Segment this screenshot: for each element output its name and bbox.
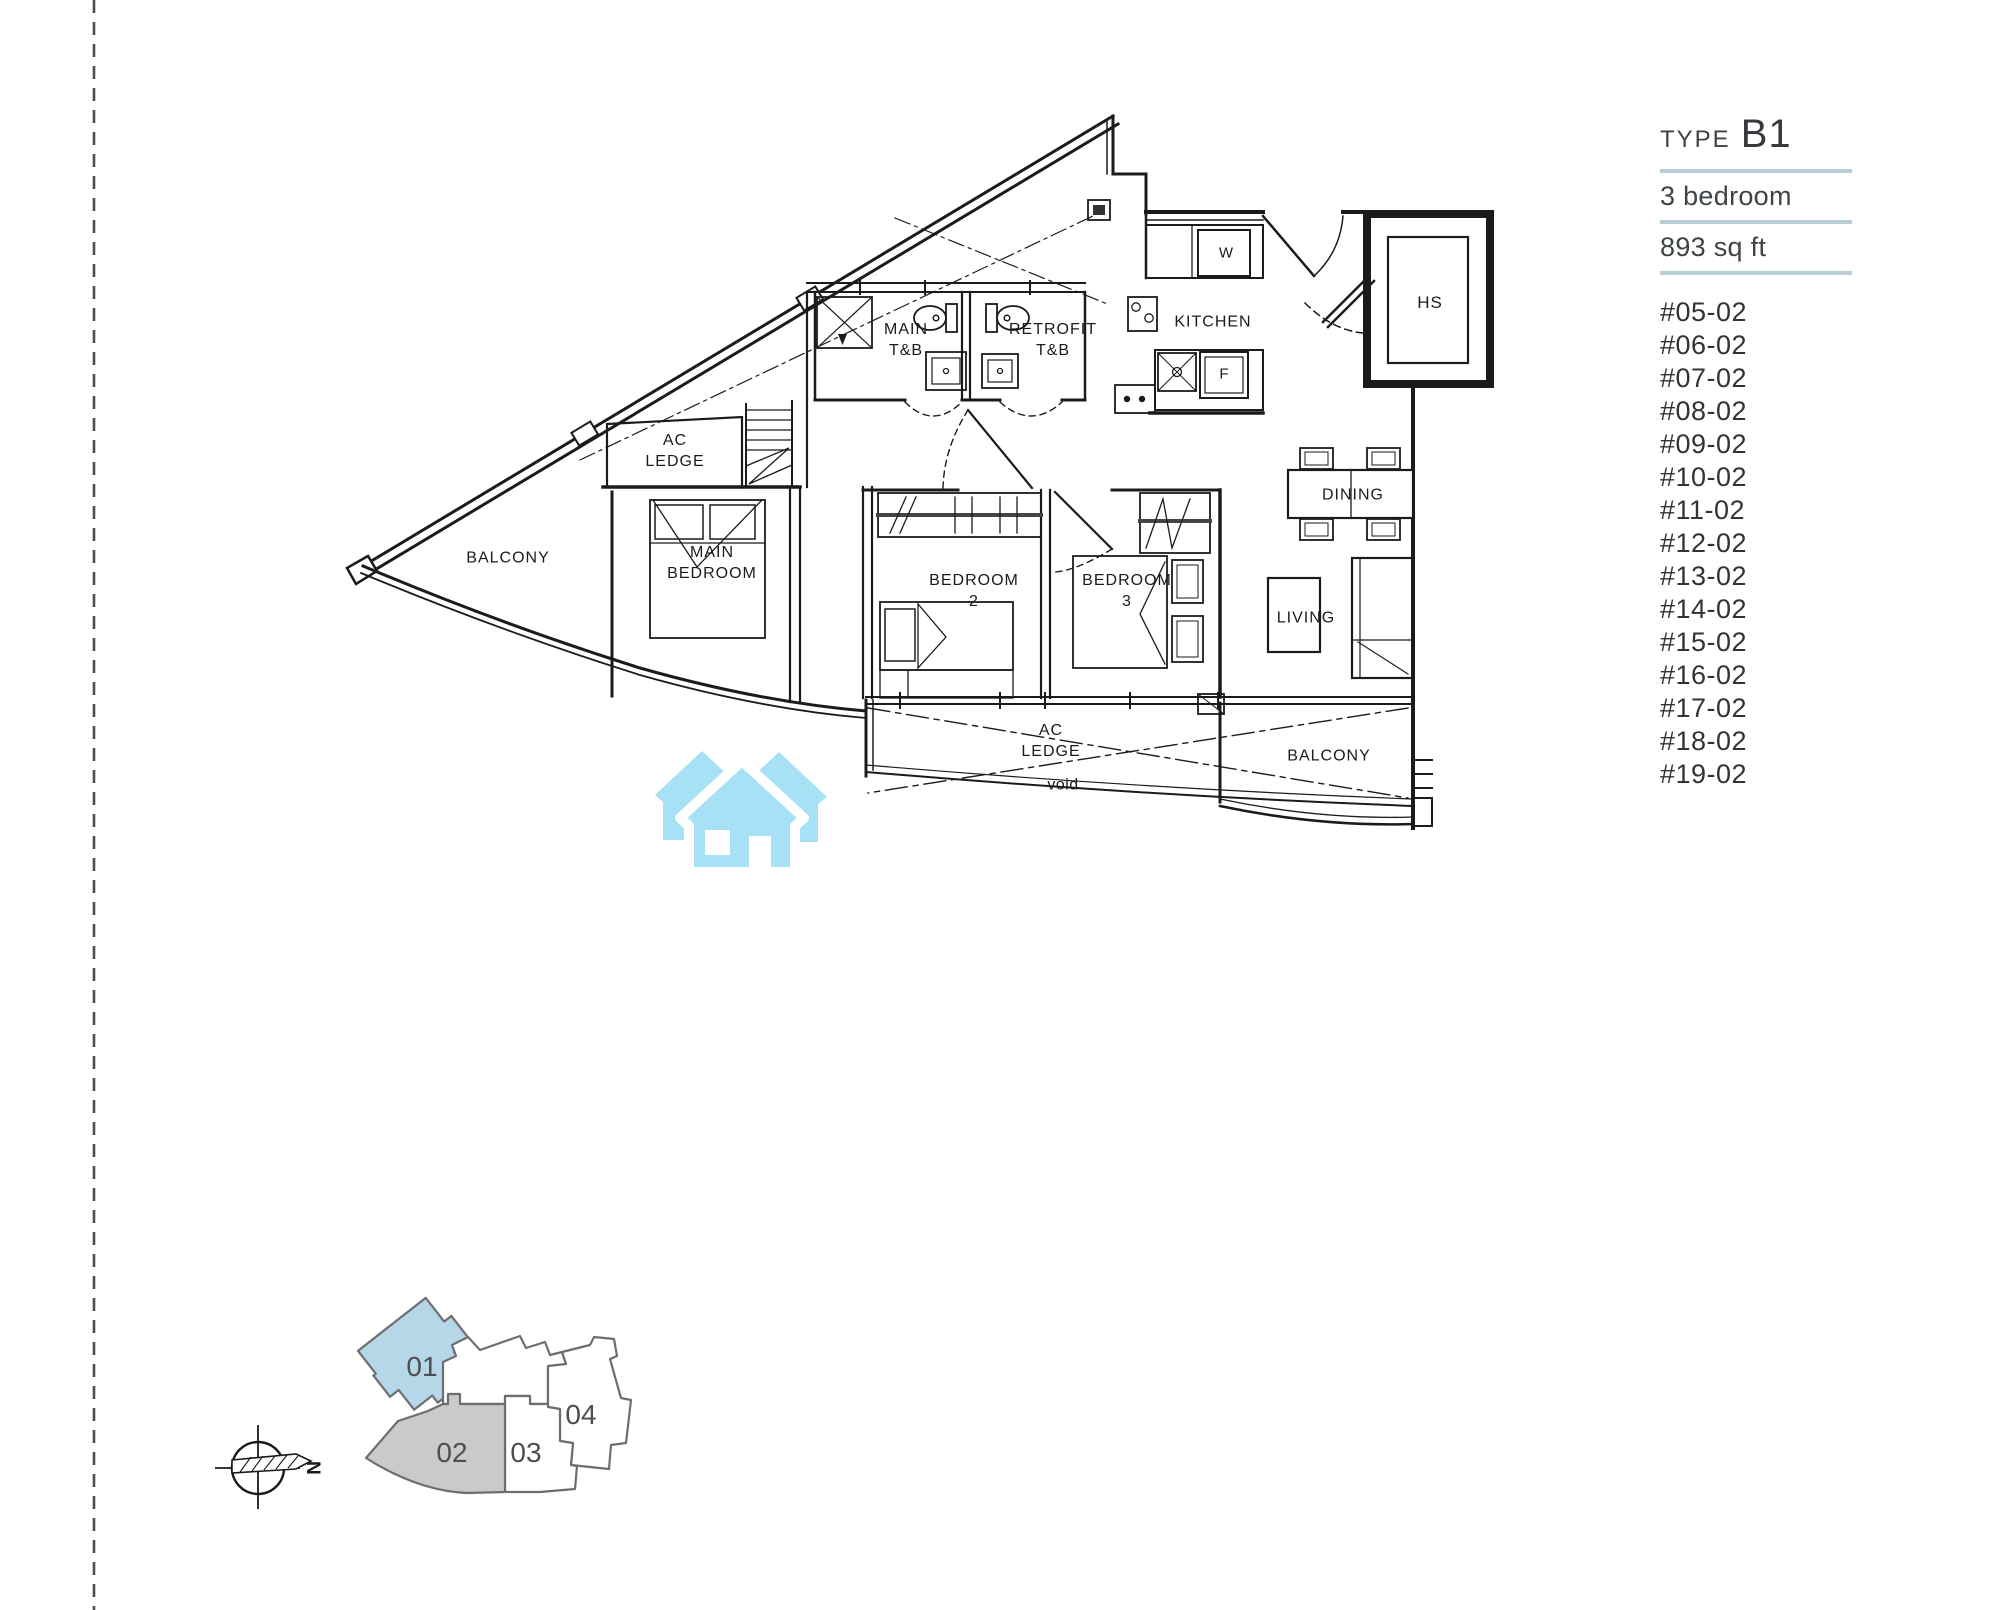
unit-number: #17-02 xyxy=(1660,692,1852,725)
unit-number: #07-02 xyxy=(1660,362,1852,395)
unit-number: #14-02 xyxy=(1660,593,1852,626)
label-ac-ledge-bottom: AC LEDGE xyxy=(1021,721,1080,763)
label-living: LIVING xyxy=(1277,609,1335,630)
label-bedroom2: BEDROOM 2 xyxy=(929,571,1019,613)
type-value: B1 xyxy=(1741,112,1792,157)
unit-number: #10-02 xyxy=(1660,461,1852,494)
logo-door xyxy=(749,836,771,872)
unit-number: #19-02 xyxy=(1660,758,1852,791)
compass-icon: N xyxy=(215,1425,323,1509)
unit-number-list: #05-02 #06-02 #07-02 #08-02 #09-02 #10-0… xyxy=(1660,296,1852,791)
unit-number: #16-02 xyxy=(1660,659,1852,692)
unit-number: #12-02 xyxy=(1660,527,1852,560)
unit-number: #05-02 xyxy=(1660,296,1852,329)
label-main-bedroom: MAIN BEDROOM xyxy=(667,543,757,585)
houses-logo xyxy=(655,751,827,872)
label-bedroom3: BEDROOM 3 xyxy=(1082,571,1172,613)
bedroom-count: 3 bedroom xyxy=(1660,173,1852,220)
key-plan-label-02: 02 xyxy=(436,1437,467,1468)
stairs xyxy=(746,401,792,487)
label-kitchen: KITCHEN xyxy=(1174,313,1251,334)
label-void: void xyxy=(1047,776,1078,797)
entry-doors xyxy=(1263,216,1374,333)
floor-area: 893 sq ft xyxy=(1660,224,1852,271)
compass-north-label: N xyxy=(302,1461,323,1475)
unit-number: #09-02 xyxy=(1660,428,1852,461)
unit-number: #15-02 xyxy=(1660,626,1852,659)
key-plan-label-01: 01 xyxy=(406,1351,437,1382)
unit-number: #06-02 xyxy=(1660,329,1852,362)
brochure-page: 01 02 03 04 N BALCONY AC LEDGE MAIN BEDR… xyxy=(0,0,2000,1610)
key-plan: 01 02 03 04 xyxy=(356,1292,631,1493)
label-balcony-left: BALCONY xyxy=(466,549,549,570)
label-dining: DINING xyxy=(1322,486,1384,507)
key-plan-label-04: 04 xyxy=(565,1399,596,1430)
unit-info-panel: TYPE B1 3 bedroom 893 sq ft #05-02 #06-0… xyxy=(1660,112,1852,791)
window-bands xyxy=(866,693,1413,708)
unit-number: #13-02 xyxy=(1660,560,1852,593)
unit-number: #08-02 xyxy=(1660,395,1852,428)
label-ac-ledge-top: AC LEDGE xyxy=(645,431,704,473)
type-label: TYPE xyxy=(1660,126,1731,154)
key-plan-label-03: 03 xyxy=(510,1437,541,1468)
label-retrofit-tb: RETROFIT T&B xyxy=(1009,320,1097,362)
bedroom-doors xyxy=(943,410,1112,572)
label-main-tb: MAIN T&B xyxy=(884,320,928,362)
divider-rule xyxy=(1660,271,1852,275)
label-washer: W xyxy=(1219,243,1233,263)
label-fridge: F xyxy=(1219,364,1228,384)
unit-number: #11-02 xyxy=(1660,494,1852,527)
type-heading: TYPE B1 xyxy=(1660,112,1852,157)
unit-number: #18-02 xyxy=(1660,725,1852,758)
logo-window xyxy=(705,830,730,855)
label-hs: HS xyxy=(1417,292,1443,314)
label-balcony-bottom: BALCONY xyxy=(1287,747,1370,768)
